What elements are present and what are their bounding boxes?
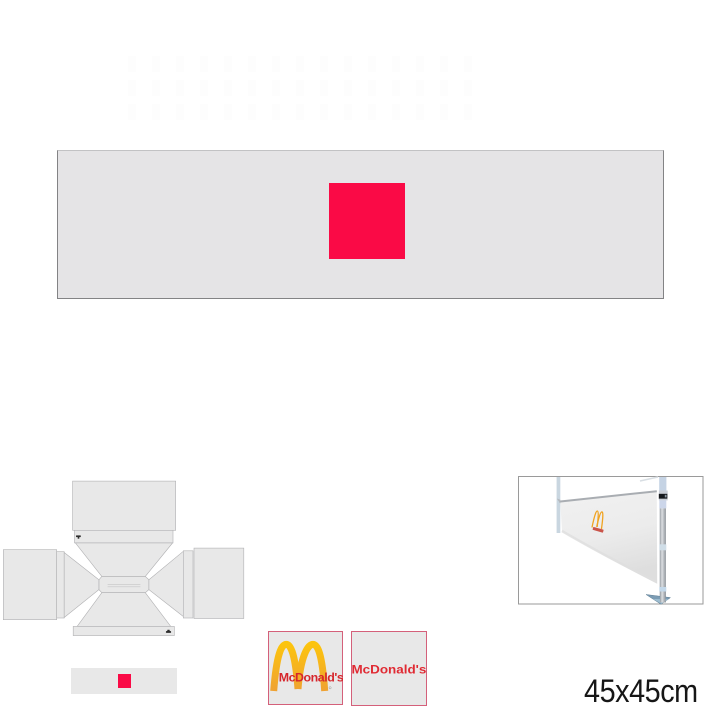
svg-text:McDonald's: McDonald's (278, 670, 342, 684)
svg-text:McDonald's: McDonald's (351, 662, 426, 676)
